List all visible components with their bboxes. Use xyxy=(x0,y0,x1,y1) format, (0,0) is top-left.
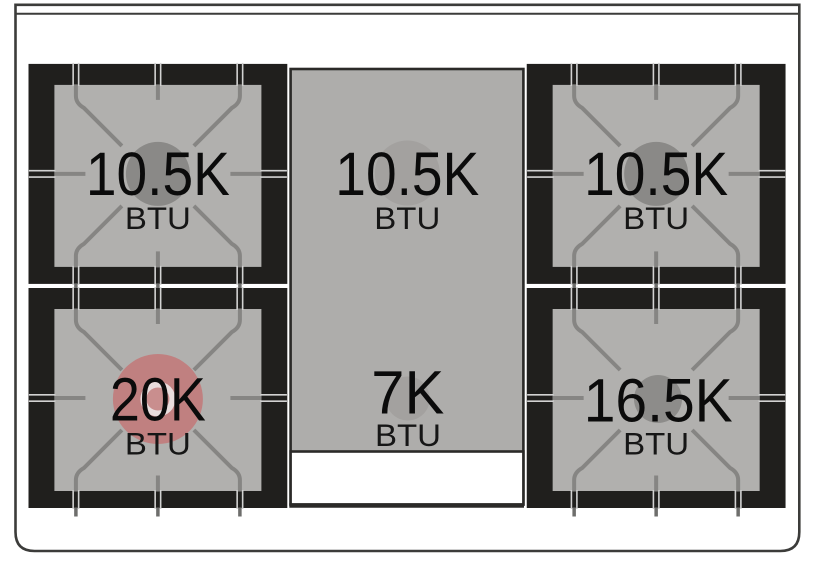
svg-text:20K: 20K xyxy=(110,366,206,434)
svg-text:10.5K: 10.5K xyxy=(584,140,728,208)
svg-text:10.5K: 10.5K xyxy=(86,140,230,208)
svg-text:BTU: BTU xyxy=(375,417,441,453)
svg-text:BTU: BTU xyxy=(374,200,440,236)
svg-text:BTU: BTU xyxy=(125,426,191,462)
svg-text:BTU: BTU xyxy=(125,200,191,236)
svg-text:10.5K: 10.5K xyxy=(335,140,479,208)
svg-text:16.5K: 16.5K xyxy=(584,367,733,435)
svg-text:BTU: BTU xyxy=(623,200,689,236)
svg-text:BTU: BTU xyxy=(623,426,689,462)
